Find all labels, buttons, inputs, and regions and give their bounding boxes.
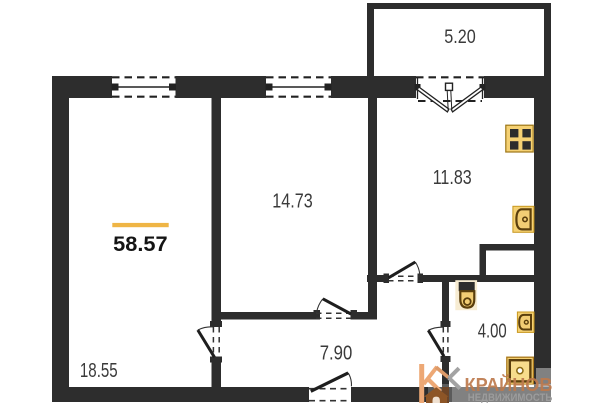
- svg-text:58.57: 58.57: [113, 232, 168, 256]
- svg-text:18.55: 18.55: [80, 359, 118, 382]
- svg-text:5.20: 5.20: [444, 27, 476, 48]
- svg-text:НЕДВИЖИМОСТЬ: НЕДВИЖИМОСТЬ: [468, 392, 553, 403]
- svg-text:7.90: 7.90: [320, 342, 353, 365]
- svg-text:11.83: 11.83: [433, 166, 472, 189]
- svg-text:4.00: 4.00: [478, 321, 507, 343]
- svg-text:14.73: 14.73: [272, 189, 313, 212]
